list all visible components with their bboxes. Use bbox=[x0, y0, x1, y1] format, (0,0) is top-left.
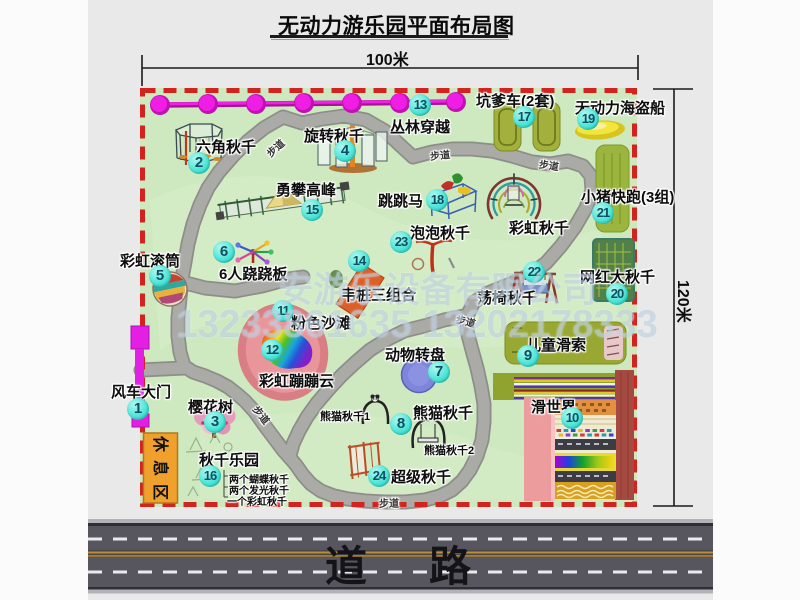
svg-text:休: 休 bbox=[151, 435, 170, 453]
svg-text:区: 区 bbox=[151, 484, 169, 500]
svg-text:息: 息 bbox=[151, 460, 170, 476]
